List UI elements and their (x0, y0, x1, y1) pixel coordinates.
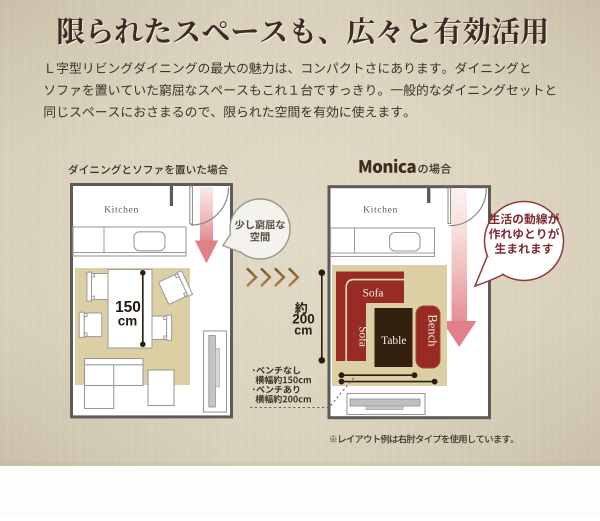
svg-text:Table: Table (381, 335, 406, 347)
svg-text:Sofa: Sofa (362, 288, 383, 300)
svg-text:Bench: Bench (426, 314, 440, 347)
svg-text:Kitchen: Kitchen (363, 205, 398, 216)
svg-text:Sofa: Sofa (357, 326, 369, 347)
svg-text:cm: cm (294, 324, 312, 338)
svg-text:Kitchen: Kitchen (104, 205, 139, 216)
svg-text:cm: cm (118, 314, 138, 329)
